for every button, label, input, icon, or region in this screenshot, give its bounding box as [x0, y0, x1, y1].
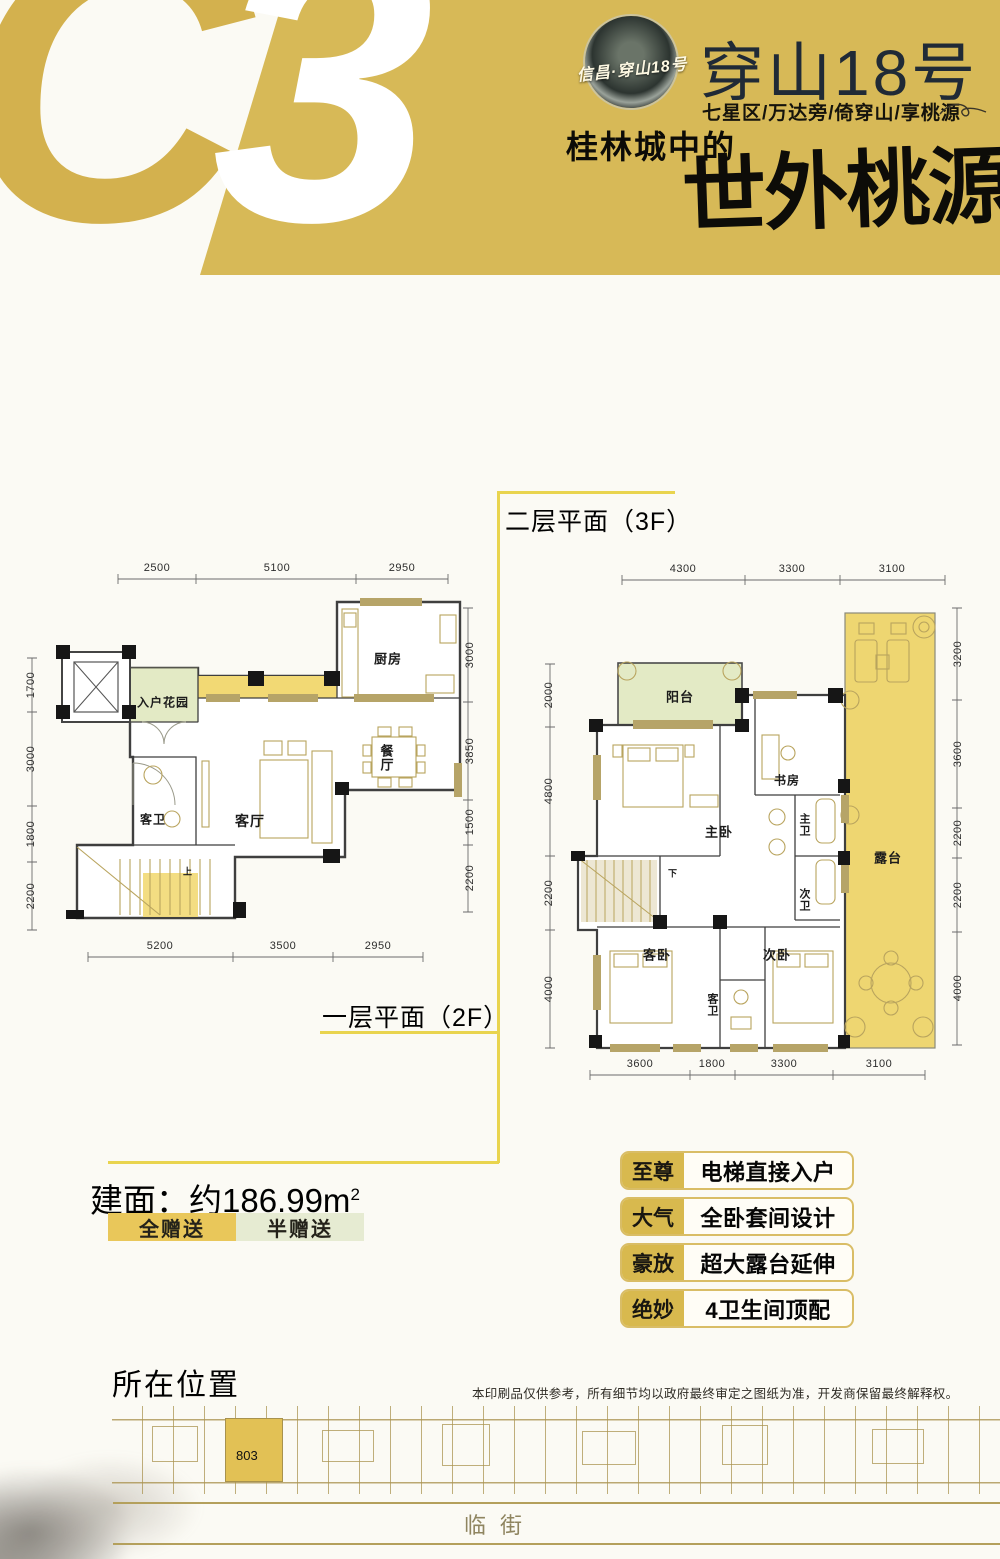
- guide-line-vertical: [497, 491, 500, 1163]
- floorplan-lower-drawing: [20, 555, 490, 975]
- room-label-second-bedroom: 次卧: [763, 945, 791, 964]
- feature-row: 豪放 超大露台延伸: [620, 1243, 854, 1282]
- slogan-main: 世外桃源: [680, 118, 1000, 250]
- dim-label: 3600: [952, 741, 964, 767]
- disclaimer-text: 本印刷品仅供参考，所有细节均以政府最终审定之图纸为准，开发商保留最终解释权。: [472, 1383, 958, 1402]
- street-label: 临街: [0, 1508, 1000, 1540]
- dim-label: 3200: [952, 641, 964, 667]
- dim-label: 2200: [543, 880, 555, 906]
- stairs-down-label: 下: [668, 867, 678, 880]
- brochure-page: C 3 信昌·穿山18号 穿山18号 七星区/万达旁/倚穿山/享桃源 桂林城中的…: [0, 0, 1000, 1559]
- dim-label: 2000: [543, 682, 555, 708]
- dim-label: 3100: [879, 563, 905, 575]
- site-unit-box: [322, 1430, 374, 1462]
- dim-label: 4000: [952, 975, 964, 1001]
- street-line-top: [113, 1502, 1000, 1504]
- guide-line-top: [500, 491, 675, 494]
- floorplan-upper: 4300330031003600180033003100200048002200…: [525, 555, 1000, 1095]
- dim-label: 1800: [25, 821, 37, 847]
- feature-desc: 超大露台延伸: [684, 1245, 852, 1280]
- dim-label: 4300: [670, 563, 696, 575]
- street-line-bottom: [113, 1543, 1000, 1545]
- room-label-guest-bedroom: 客卧: [643, 945, 671, 964]
- dim-label: 1500: [464, 809, 476, 835]
- feature-row: 大气 全卧套间设计: [620, 1197, 854, 1236]
- room-label-second-bath: 次卫: [796, 888, 812, 912]
- room-label-guest-bath: 客卫: [704, 993, 720, 1017]
- feature-tag: 绝妙: [622, 1291, 684, 1326]
- dim-label: 5100: [264, 562, 290, 574]
- room-label-master-bedroom: 主卧: [705, 822, 733, 841]
- dim-label: 2950: [389, 562, 415, 574]
- room-label-terrace: 露台: [874, 848, 902, 867]
- room-label-balcony: 阳台: [666, 687, 694, 706]
- dim-label: 4000: [543, 976, 555, 1002]
- plan-lower-title: 一层平面（2F）: [322, 998, 509, 1034]
- dim-label: 2500: [144, 562, 170, 574]
- dim-label: 3000: [25, 746, 37, 772]
- room-label-study: 书房: [774, 772, 800, 789]
- unit-code-number: 3: [212, 0, 424, 275]
- feature-row: 至尊 电梯直接入户: [620, 1151, 854, 1190]
- dim-label: 3850: [464, 738, 476, 764]
- plan-upper-title: 二层平面（3F）: [505, 502, 692, 538]
- feature-tag: 至尊: [622, 1153, 684, 1188]
- legend-half-gift: 半赠送: [236, 1213, 364, 1241]
- room-label-living: 客厅: [235, 811, 265, 831]
- site-unit-box: [722, 1425, 768, 1465]
- site-unit-box: [872, 1429, 924, 1464]
- room-label-guest-bath: 客卫: [140, 811, 166, 828]
- site-unit-box: [442, 1424, 490, 1466]
- site-plan-strip: 803: [112, 1406, 1000, 1494]
- room-label-master-bath: 主卫: [796, 813, 812, 837]
- floorplan-upper-drawing: [525, 555, 1000, 1095]
- dim-label: 1700: [25, 672, 37, 698]
- dim-label: 2200: [952, 820, 964, 846]
- feature-list: 至尊 电梯直接入户 大气 全卧套间设计 豪放 超大露台延伸 绝妙 4卫生间顶配: [620, 1151, 854, 1335]
- dim-label: 4800: [543, 778, 555, 804]
- room-label-entry-garden: 入户花园: [137, 694, 189, 711]
- feature-tag: 豪放: [622, 1245, 684, 1280]
- location-title: 所在位置: [112, 1360, 240, 1404]
- built-area-sup: 2: [350, 1185, 359, 1204]
- dim-label: 5200: [147, 940, 173, 952]
- site-unit-box: [152, 1426, 198, 1462]
- dim-label: 3300: [771, 1058, 797, 1070]
- unit-803-label: 803: [236, 1448, 258, 1463]
- dim-label: 3000: [464, 642, 476, 668]
- dim-label: 2200: [25, 883, 37, 909]
- room-label-kitchen: 厨房: [374, 649, 402, 668]
- dim-label: 2950: [365, 940, 391, 952]
- feature-desc: 电梯直接入户: [684, 1153, 852, 1188]
- legend-full-gift: 全赠送: [108, 1213, 236, 1241]
- feature-desc: 全卧套间设计: [684, 1199, 852, 1234]
- dim-label: 3100: [866, 1058, 892, 1070]
- dim-label: 3500: [270, 940, 296, 952]
- room-label-dining: 餐厅: [377, 744, 396, 772]
- floorplan-lower: 2500510029505200350029501700300018002200…: [20, 555, 490, 975]
- dim-label: 2200: [952, 882, 964, 908]
- legend-bar: 全赠送 半赠送: [108, 1213, 364, 1241]
- feature-tag: 大气: [622, 1199, 684, 1234]
- dim-label: 1800: [699, 1058, 725, 1070]
- feature-desc: 4卫生间顶配: [684, 1291, 852, 1326]
- guide-line-bottom: [108, 1161, 499, 1164]
- unit-code-letter: C: [0, 0, 241, 275]
- dim-label: 3300: [779, 563, 805, 575]
- dim-label: 2200: [464, 865, 476, 891]
- feature-row: 绝妙 4卫生间顶配: [620, 1289, 854, 1328]
- dim-label: 3600: [627, 1058, 653, 1070]
- site-unit-box: [582, 1431, 636, 1465]
- stairs-up-label: 上: [183, 865, 193, 878]
